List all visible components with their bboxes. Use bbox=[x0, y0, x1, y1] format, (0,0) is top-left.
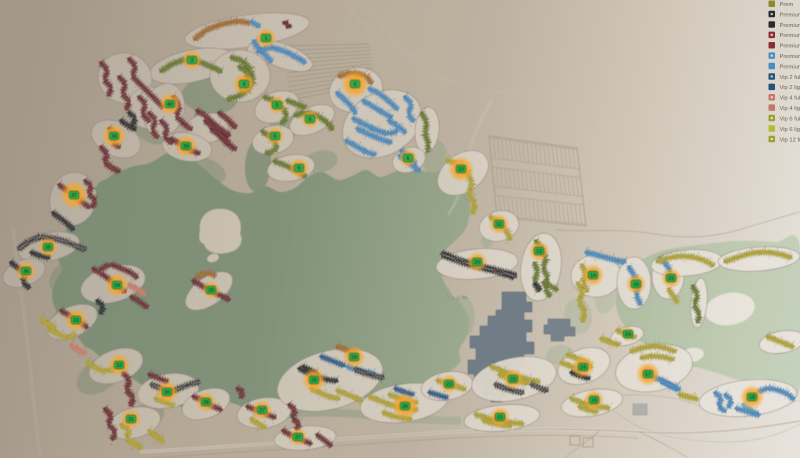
svg-text:Prem: Prem bbox=[780, 2, 794, 8]
svg-text:33: 33 bbox=[73, 318, 79, 324]
svg-text:29: 29 bbox=[351, 355, 357, 361]
svg-text:24: 24 bbox=[625, 332, 632, 338]
svg-text:5: 5 bbox=[353, 82, 356, 88]
svg-text:Premium li: Premium li bbox=[780, 44, 800, 50]
svg-text:Premium f: Premium f bbox=[780, 54, 800, 60]
svg-text:15: 15 bbox=[668, 276, 674, 282]
svg-text:10: 10 bbox=[458, 167, 464, 173]
svg-text:11: 11 bbox=[496, 222, 502, 228]
svg-text:Vip 2 light: Vip 2 light bbox=[780, 85, 800, 91]
svg-text:23: 23 bbox=[446, 382, 452, 388]
svg-text:1: 1 bbox=[264, 36, 267, 42]
svg-text:24: 24 bbox=[580, 365, 587, 371]
svg-text:22: 22 bbox=[510, 377, 516, 383]
svg-text:18: 18 bbox=[749, 395, 755, 401]
svg-text:Vip 6 full: Vip 6 full bbox=[780, 116, 800, 122]
svg-text:19: 19 bbox=[591, 398, 597, 404]
svg-text:28: 28 bbox=[208, 288, 214, 294]
svg-text:30: 30 bbox=[164, 390, 170, 396]
svg-text:37: 37 bbox=[71, 193, 77, 199]
svg-text:Vip 12 full: Vip 12 full bbox=[780, 137, 800, 143]
svg-text:5: 5 bbox=[273, 134, 276, 140]
svg-text:Premium f: Premium f bbox=[780, 12, 800, 18]
svg-text:Premium f: Premium f bbox=[780, 33, 800, 39]
svg-text:26: 26 bbox=[402, 404, 408, 410]
svg-text:39: 39 bbox=[183, 144, 189, 150]
svg-text:3: 3 bbox=[190, 58, 193, 64]
svg-text:6: 6 bbox=[406, 156, 409, 162]
svg-text:Vip 4 light: Vip 4 light bbox=[780, 106, 800, 112]
svg-text:27: 27 bbox=[295, 435, 301, 441]
svg-text:20: 20 bbox=[474, 260, 480, 266]
svg-text:17: 17 bbox=[645, 372, 651, 378]
svg-text:14: 14 bbox=[590, 273, 597, 279]
svg-text:31: 31 bbox=[128, 417, 134, 423]
svg-text:35: 35 bbox=[45, 245, 51, 251]
svg-text:Vip 2 full: Vip 2 full bbox=[780, 75, 800, 81]
svg-text:25: 25 bbox=[311, 378, 317, 384]
svg-text:5: 5 bbox=[275, 103, 278, 109]
svg-text:16: 16 bbox=[633, 282, 639, 288]
svg-text:38: 38 bbox=[111, 134, 117, 140]
svg-text:34: 34 bbox=[114, 283, 121, 289]
svg-text:Premium li: Premium li bbox=[780, 64, 800, 70]
svg-text:27: 27 bbox=[259, 408, 265, 414]
svg-text:5: 5 bbox=[297, 166, 300, 172]
svg-text:13: 13 bbox=[536, 249, 542, 255]
svg-text:40: 40 bbox=[167, 102, 173, 108]
svg-text:36: 36 bbox=[23, 269, 29, 275]
svg-text:Vip 4 full: Vip 4 full bbox=[780, 96, 800, 102]
svg-text:32: 32 bbox=[116, 363, 122, 369]
svg-text:Vip 6 light: Vip 6 light bbox=[780, 127, 800, 133]
svg-text:28: 28 bbox=[203, 400, 209, 406]
svg-text:Premium li: Premium li bbox=[780, 23, 800, 29]
svg-text:21: 21 bbox=[497, 415, 503, 421]
svg-text:5: 5 bbox=[308, 117, 311, 123]
